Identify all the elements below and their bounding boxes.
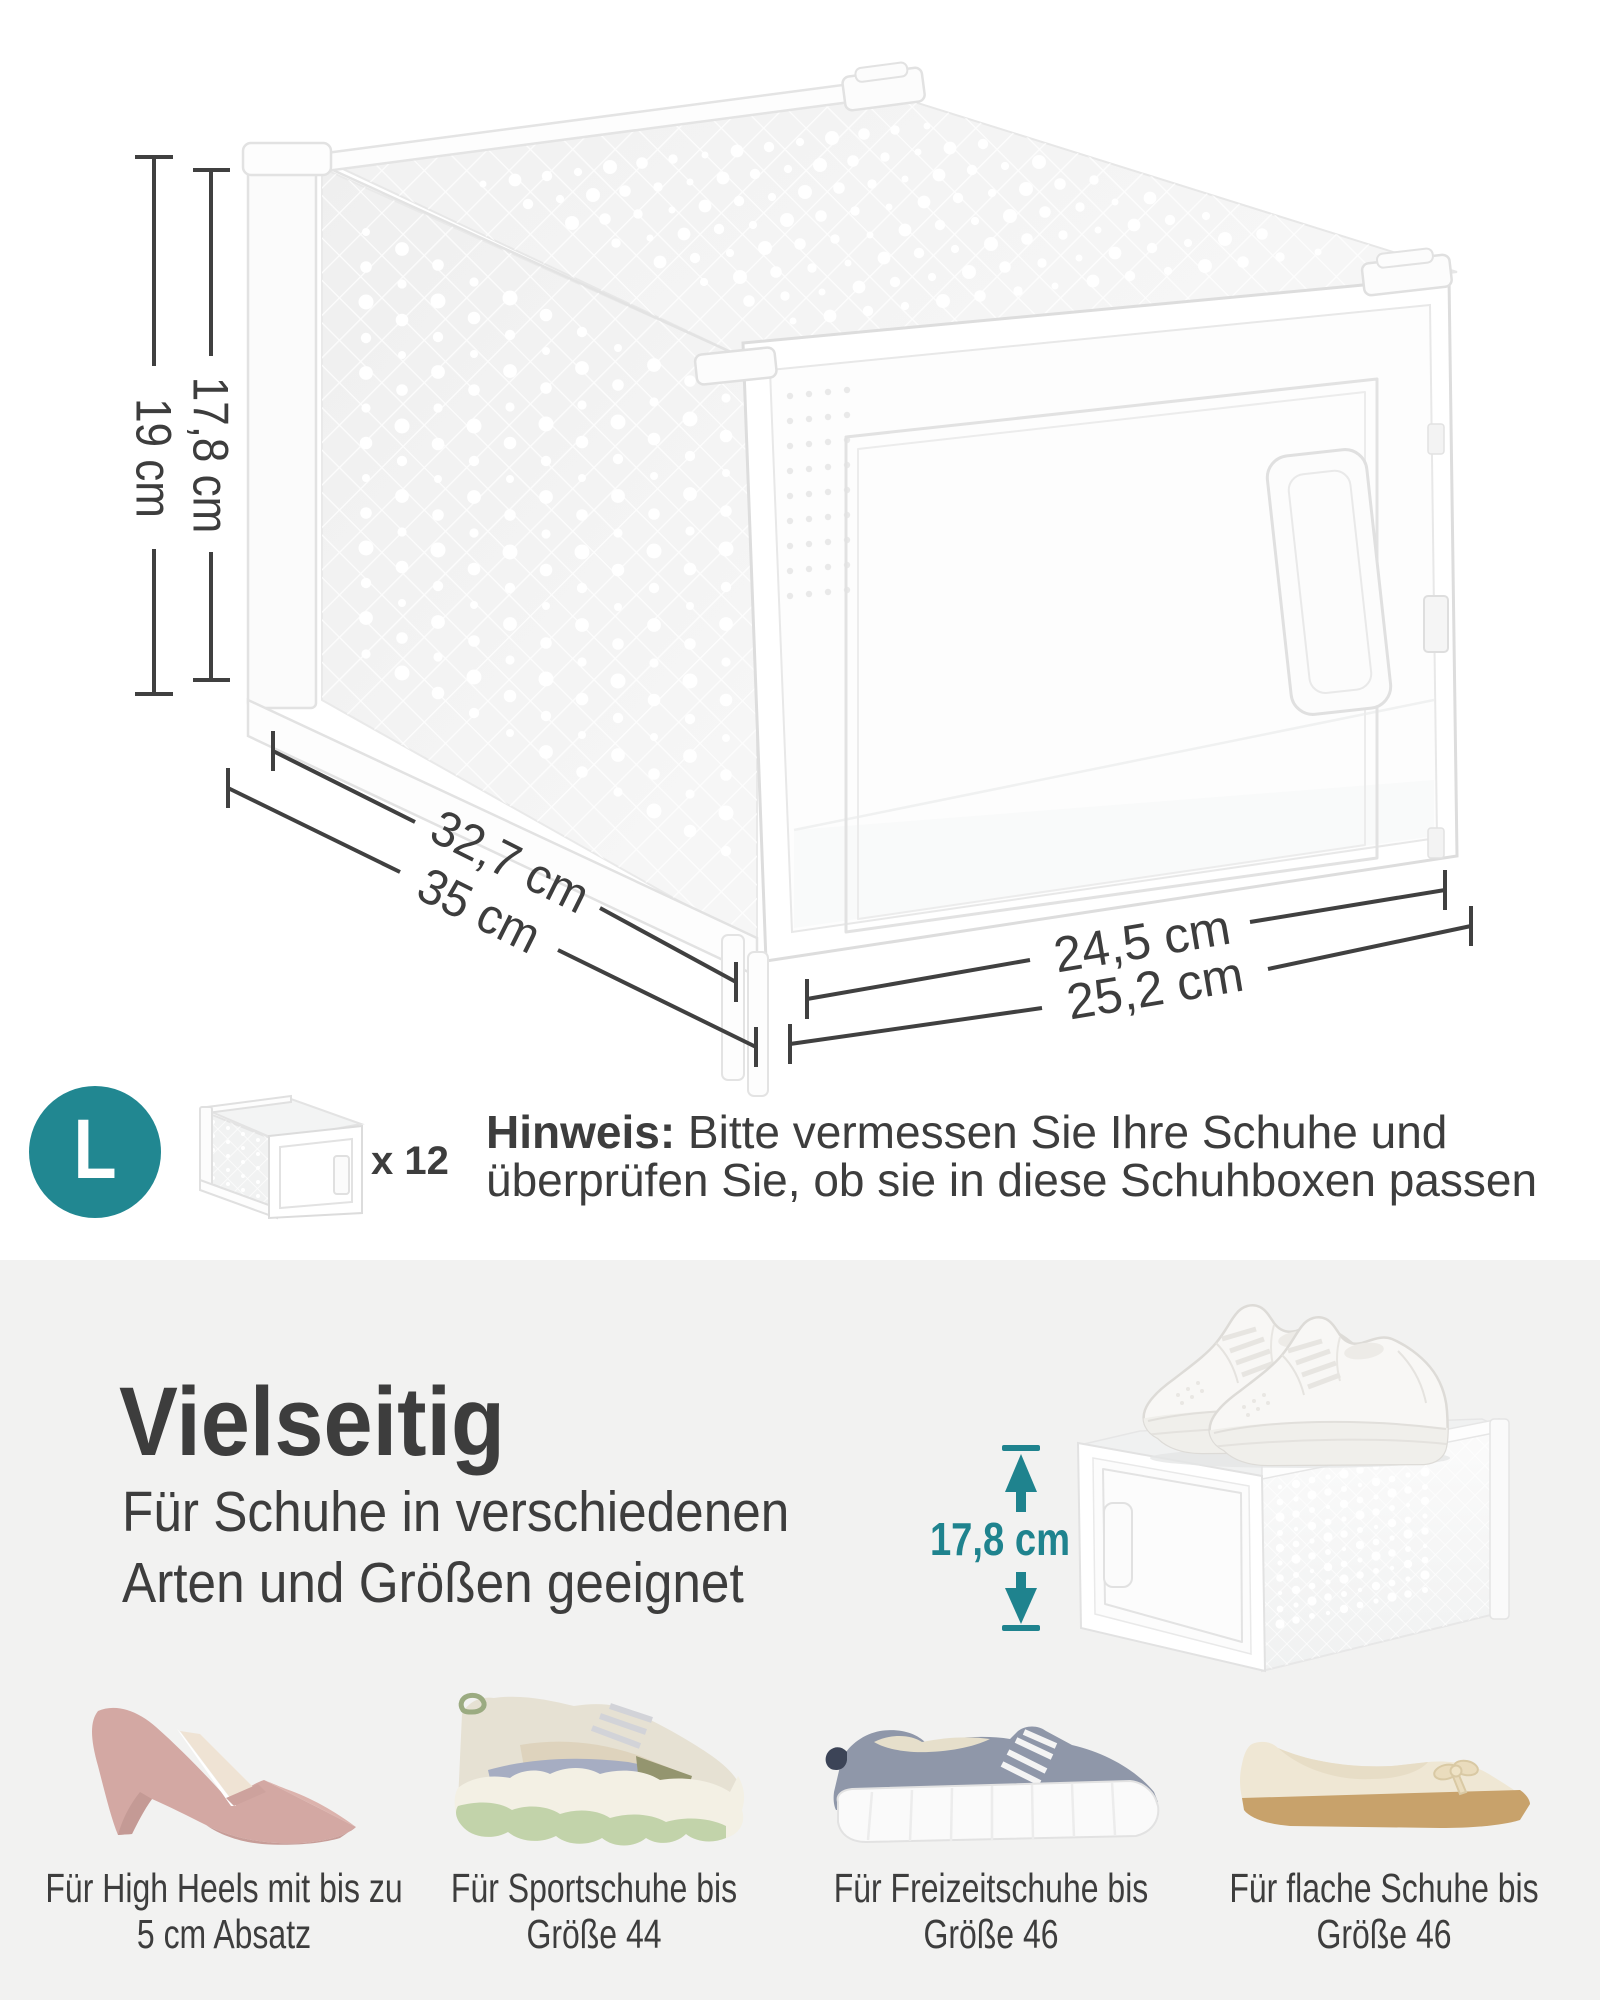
- svg-text:17,8 cm: 17,8 cm: [183, 377, 239, 533]
- svg-text:L: L: [73, 1103, 116, 1196]
- svg-text:19 cm: 19 cm: [126, 398, 182, 518]
